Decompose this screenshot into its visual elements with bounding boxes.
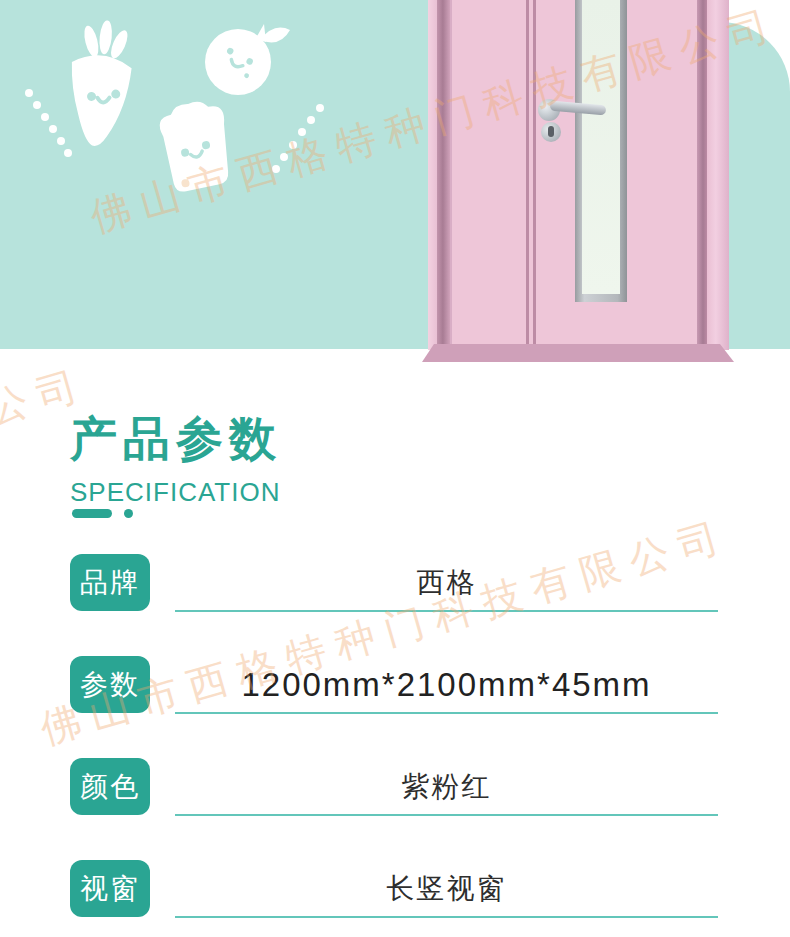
tomato-icon <box>196 16 296 100</box>
keyhole-icon <box>541 122 561 142</box>
spec-value: 西格 <box>175 554 718 611</box>
door-right-frame <box>697 0 707 350</box>
product-detail-page: 佛山市西格特种门科技有限公司 佛山市西格特种门科技有限公司 限公司 产品参数 S… <box>0 0 790 937</box>
door-left-edge <box>428 0 437 350</box>
spec-label-badge: 品牌 <box>70 554 150 611</box>
spec-row: 视窗 长竖视窗 <box>0 860 790 920</box>
dot-deco-icon <box>289 141 297 149</box>
watermark-text: 佛山市西格特种门科技有限公司 <box>34 507 736 757</box>
page-subtitle: SPECIFICATION <box>70 477 280 508</box>
vertical-glass-window <box>582 0 620 294</box>
dot-deco-icon <box>33 101 41 109</box>
dot-deco-icon <box>307 116 315 124</box>
door-narrow-leaf <box>450 0 543 350</box>
dot-deco-icon <box>316 104 324 112</box>
spec-value: 长竖视窗 <box>175 860 718 917</box>
door-illustration <box>424 0 746 363</box>
carrot-icon <box>53 17 147 163</box>
door-main-leaf <box>541 0 697 350</box>
door-bottom-sill <box>422 344 734 362</box>
dot-deco-icon <box>280 153 288 161</box>
spec-label-badge: 颜色 <box>70 758 150 815</box>
dot-deco-icon <box>25 89 33 97</box>
door-left-frame <box>437 0 450 350</box>
divider-dot-icon <box>124 509 133 518</box>
dot-deco-icon <box>298 128 306 136</box>
spec-value: 紫粉红 <box>175 758 718 815</box>
divider-dash-icon <box>72 509 112 518</box>
row-underline <box>175 712 718 714</box>
row-underline <box>175 916 718 918</box>
spec-row: 品牌 西格 <box>0 554 790 614</box>
page-title: 产品参数 <box>70 408 282 471</box>
row-underline <box>175 814 718 816</box>
dot-deco-icon <box>41 113 49 121</box>
spec-row: 参数 1200mm*2100mm*45mm <box>0 656 790 716</box>
door-right-edge <box>707 0 729 350</box>
spec-label-badge: 视窗 <box>70 860 150 917</box>
spec-row: 颜色 紫粉红 <box>0 758 790 818</box>
spec-label-badge: 参数 <box>70 656 150 713</box>
spec-value: 1200mm*2100mm*45mm <box>175 656 718 713</box>
row-underline <box>175 610 718 612</box>
dot-deco-icon <box>272 165 280 173</box>
